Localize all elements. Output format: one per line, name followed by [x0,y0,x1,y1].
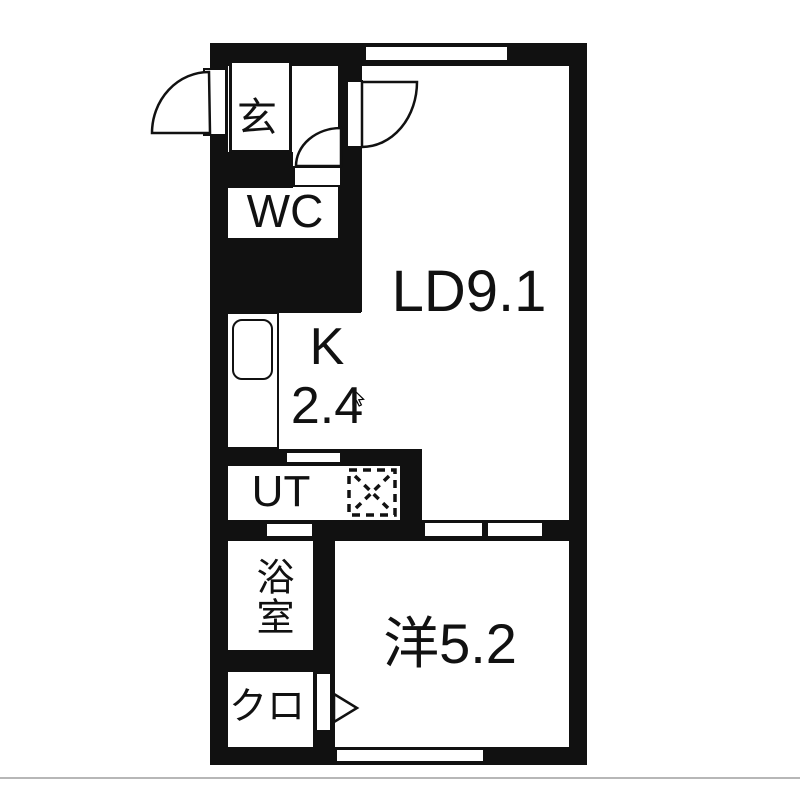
western-sliding-door-panel-2 [486,521,544,538]
wc-door-opening [293,166,342,187]
fixture-icons [0,0,800,800]
entrance-door-leaf [203,68,227,136]
living-label: LD9.1 [392,263,547,321]
utility-label: UT [252,470,311,514]
living-door-opening [346,80,363,148]
wall-below-genkan [228,152,293,188]
wall-below-wc [228,238,361,313]
floorplan-image: 玄 WC LD9.1 K 2.4 UT 浴室 クロ 洋5.2 [0,0,800,800]
bathroom-door-opening [265,522,314,538]
entrance-door-swing-icon [152,72,210,133]
western-room-label: 洋5.2 [383,616,517,672]
genkan-label: 玄 [237,98,277,138]
closet-door-arrow-icon [334,694,357,722]
washing-machine-space-icon [349,470,395,515]
kitchen-counter [226,312,279,449]
bathroom-label: 浴室 [252,557,290,637]
kitchen-ut-opening [285,451,342,464]
wc-label: WC [247,188,324,234]
top-window [364,45,509,62]
kitchen-label: K [310,321,345,373]
western-sliding-door-panel-1 [423,521,484,538]
bottom-window [335,748,485,763]
kitchen-sink [232,319,273,380]
wall-bath-closet [210,650,335,672]
living-door-swing-icon [362,82,417,147]
wall-right [569,43,587,765]
kitchen-size-label: 2.4 [291,380,363,432]
wc-door-swing-icon [296,128,341,166]
page-divider [0,777,800,779]
closet-label: クロ [229,688,305,726]
closet-door-opening [315,672,332,732]
